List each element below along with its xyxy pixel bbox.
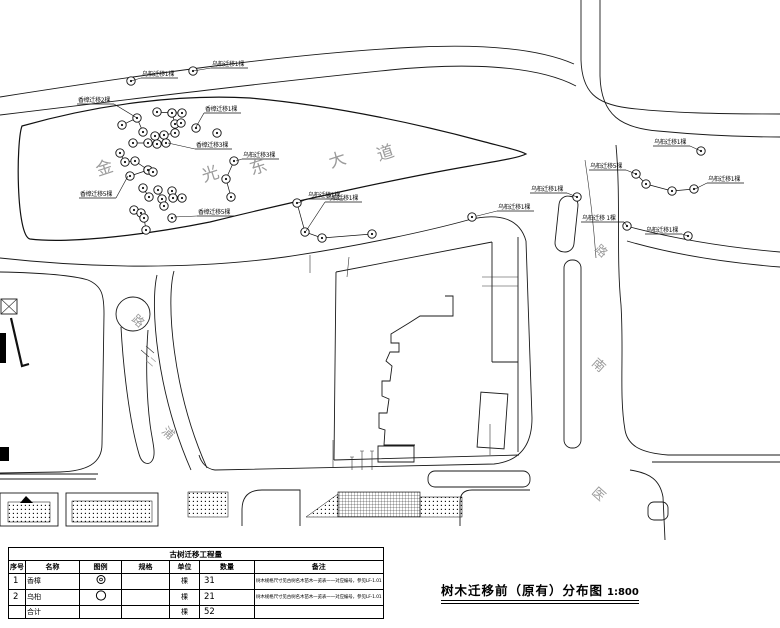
- tree-symbol: [293, 199, 301, 207]
- tree-label: 乌桕迁移1棵: [477, 203, 534, 216]
- dotted-area: [188, 492, 228, 517]
- tree-symbol: [169, 194, 177, 202]
- tree-label: 乌桕迁移1棵: [653, 138, 701, 151]
- tree-label: 香樟迁移1棵: [196, 105, 241, 127]
- svg-text:乌桕迁移1棵: 乌桕迁移1棵: [212, 60, 244, 68]
- tree-symbol: [168, 109, 176, 117]
- building-solid: [0, 447, 9, 461]
- tallow-legend-icon: [94, 590, 108, 601]
- quantity-table: 古树迁移工程量 序号 名称 图例 规格 单位 数量 备注 1 香樟 棵 31 树…: [8, 547, 384, 619]
- tree-symbol: [131, 157, 139, 165]
- row-no: 2: [9, 590, 26, 606]
- qty-cell: 21: [200, 590, 255, 606]
- building-base: [378, 446, 414, 462]
- tree-symbol: [168, 214, 176, 222]
- parcel-boundary: [334, 237, 519, 460]
- tree-symbol: [149, 168, 157, 176]
- legend-cell: [80, 574, 122, 590]
- svg-text:香樟迁移1棵: 香樟迁移1棵: [205, 105, 237, 113]
- table-row: 1 香樟 棵 31 树木规格尺寸见古树名木苗木一览表一一对应编号，参见LF-1.…: [9, 574, 384, 590]
- legend-cell: [80, 590, 122, 606]
- title-underline: [441, 603, 639, 604]
- svg-text:乌桕迁移1棵: 乌桕迁移1棵: [708, 175, 740, 183]
- tree-symbol: [222, 175, 230, 183]
- building-outline: [477, 392, 508, 449]
- tree-symbol: [140, 214, 148, 222]
- unit-cell: 棵: [170, 606, 200, 619]
- col-header: 序号: [9, 561, 26, 574]
- tree-symbol: [142, 226, 150, 234]
- tree-symbol: [468, 213, 476, 221]
- tree-label: 乌桕迁移1棵: [306, 194, 362, 231]
- median-island: [564, 260, 581, 448]
- tree-symbol: [139, 128, 147, 136]
- col-header: 图例: [80, 561, 122, 574]
- qty-cell: 52: [200, 606, 255, 619]
- col-header: 规格: [122, 561, 170, 574]
- tree-symbol: [213, 129, 221, 137]
- tree-symbol: [177, 119, 185, 127]
- cad-sheet: { "drawing": { "title": "树木迁移前（原有）分布图", …: [0, 0, 780, 628]
- table-row: 合计 棵 52: [9, 606, 384, 619]
- col-header: 备注: [255, 561, 384, 574]
- dotted-triangle: [306, 494, 338, 517]
- road-line: [0, 217, 526, 266]
- drawing-scale: 1:800: [607, 587, 639, 598]
- tree-symbol: [139, 184, 147, 192]
- road-line: [154, 275, 191, 470]
- svg-text:香樟迁移5棵: 香樟迁移5棵: [80, 190, 112, 198]
- road-line: [0, 474, 98, 479]
- svg-text:乌桕迁移1棵: 乌桕迁移1棵: [531, 185, 563, 193]
- tree-label: 乌桕迁移1棵: [131, 70, 178, 81]
- road-line: [627, 241, 780, 267]
- unit-cell: 棵: [170, 574, 200, 590]
- tree-label: 乌桕迁移5棵: [589, 162, 636, 174]
- street-name: 大: [326, 148, 348, 172]
- tree-label: 乌桕迁移1棵: [695, 175, 744, 189]
- small-structure: [648, 502, 668, 520]
- tree-leader-labels: 乌桕迁移1棵乌桕迁移1棵香樟迁移2棵香樟迁移1棵香樟迁移3棵乌桕迁移3棵香樟迁移…: [77, 60, 744, 236]
- road-line: [0, 272, 104, 473]
- row-no: [9, 606, 26, 619]
- table-header-row: 序号 名称 图例 规格 单位 数量 备注: [9, 561, 384, 574]
- tree-label: 香樟迁移5棵: [174, 208, 234, 217]
- svg-text:香樟迁移3棵: 香樟迁移3棵: [196, 141, 228, 149]
- tree-symbol: [154, 186, 162, 194]
- parcel-detail: [310, 255, 518, 286]
- block-outline: [460, 490, 530, 526]
- note-cell: [255, 606, 384, 619]
- table-title: 古树迁移工程量: [9, 548, 384, 561]
- tree-symbol: [668, 187, 676, 195]
- hatched-box-cross: [1, 299, 17, 314]
- tree-symbol: [126, 172, 134, 180]
- tree-symbol: [116, 149, 124, 157]
- street-name: 医: [588, 485, 608, 505]
- crosshatch-area: [338, 492, 420, 517]
- tree-symbol: [153, 108, 161, 116]
- svg-text:香樟迁移5棵: 香樟迁移5棵: [198, 208, 230, 216]
- road-line: [616, 145, 780, 455]
- tree-symbol: [121, 158, 129, 166]
- block-outline: [242, 490, 300, 526]
- lane-line: [585, 160, 596, 258]
- tree-symbol: [227, 193, 235, 201]
- road-line: [0, 46, 574, 97]
- road-network: [0, 0, 780, 540]
- tree-name: 合计: [26, 606, 80, 619]
- building-outline: [379, 296, 453, 445]
- note-cell: 树木规格尺寸见古树名木苗木一览表一一对应编号，参见LF-1.01: [255, 590, 384, 606]
- qty-cell: 31: [200, 574, 255, 590]
- legend-cell: [80, 606, 122, 619]
- wall: [11, 318, 29, 366]
- tree-symbol: [151, 132, 159, 140]
- col-header: 数量: [200, 561, 255, 574]
- spec-cell: [122, 574, 170, 590]
- camphor-legend-icon: [94, 574, 108, 585]
- tree-label: 乌桕迁移1棵: [530, 185, 577, 197]
- tree-symbol: [178, 109, 186, 117]
- col-header: 单位: [170, 561, 200, 574]
- tree-symbol: [690, 185, 698, 193]
- tree-symbol: [171, 129, 179, 137]
- drawing-title: 树木迁移前（原有）分布图: [441, 583, 603, 598]
- tree-symbol: [153, 140, 161, 148]
- tree-label: 乌桕迁移 1棵: [581, 214, 627, 226]
- dotted-area: [72, 501, 152, 522]
- spec-cell: [122, 590, 170, 606]
- svg-text:乌桕迁移1棵: 乌桕迁移1棵: [654, 138, 686, 146]
- row-no: 1: [9, 574, 26, 590]
- tree-symbol: [144, 139, 152, 147]
- tree-symbol: [178, 194, 186, 202]
- col-header: 名称: [26, 561, 80, 574]
- median-green-belt: [18, 97, 526, 240]
- tree-name: 乌桕: [26, 590, 80, 606]
- road-line: [199, 241, 532, 470]
- street-name: 道: [374, 141, 396, 165]
- road-line: [581, 0, 780, 114]
- tree-symbol: [145, 193, 153, 201]
- street-name: 光: [199, 162, 221, 186]
- road-line: [630, 470, 665, 540]
- road-line: [0, 66, 576, 115]
- dotted-area: [420, 497, 462, 517]
- buildings: [0, 237, 519, 503]
- bus-bay: [428, 471, 530, 487]
- street-name: 金: [93, 156, 115, 180]
- tree-symbol: [318, 234, 326, 242]
- svg-text:乌桕迁移1棵: 乌桕迁移1棵: [498, 203, 530, 211]
- teardrop-island-head: [116, 297, 150, 331]
- tree-symbol: [368, 230, 376, 238]
- tree-symbol: [301, 228, 309, 236]
- median-island: [554, 195, 579, 253]
- svg-text:乌桕迁移5棵: 乌桕迁移5棵: [590, 162, 622, 170]
- tree-name: 香樟: [26, 574, 80, 590]
- pole-marks: [333, 424, 490, 470]
- svg-text:乌桕迁移1棵: 乌桕迁移1棵: [142, 70, 174, 78]
- unit-cell: 棵: [170, 590, 200, 606]
- road-line: [600, 0, 780, 137]
- tree-symbol: [642, 180, 650, 188]
- tree-symbol: [118, 121, 126, 129]
- title-underline: [441, 600, 639, 601]
- tree-symbol: [160, 202, 168, 210]
- road-line: [171, 271, 207, 468]
- note-cell: 树木规格尺寸见古树名木苗木一览表一一对应编号，参见LF-1.01: [255, 574, 384, 590]
- site-plan-drawing: 乌桕迁移1棵乌桕迁移1棵香樟迁移2棵香樟迁移1棵香樟迁移3棵乌桕迁移3棵香樟迁移…: [0, 0, 780, 545]
- tree-label: 乌桕迁移1棵: [193, 60, 248, 71]
- svg-text:乌桕迁移1棵: 乌桕迁移1棵: [326, 194, 358, 202]
- building-solid: [0, 333, 6, 363]
- svg-text:乌桕迁移 1棵: 乌桕迁移 1棵: [582, 214, 616, 222]
- svg-text:香樟迁移2棵: 香樟迁移2棵: [78, 96, 110, 104]
- tree-label: 香樟迁移3棵: [168, 141, 232, 149]
- tree-symbol: [129, 139, 137, 147]
- dotted-area: [8, 502, 50, 522]
- tree-label: 乌桕迁移1棵: [645, 226, 688, 236]
- street-name: 南: [588, 355, 608, 376]
- tree-symbol: [192, 124, 200, 132]
- spec-cell: [122, 606, 170, 619]
- tree-symbol: [160, 131, 168, 139]
- svg-text:乌桕迁移1棵: 乌桕迁移1棵: [646, 226, 678, 234]
- table-row: 2 乌桕 棵 21 树木规格尺寸见古树名木苗木一览表一一对应编号，参见LF-1.…: [9, 590, 384, 606]
- drawing-title-block: 树木迁移前（原有）分布图1:800: [441, 580, 639, 604]
- teardrop-island: [121, 327, 154, 463]
